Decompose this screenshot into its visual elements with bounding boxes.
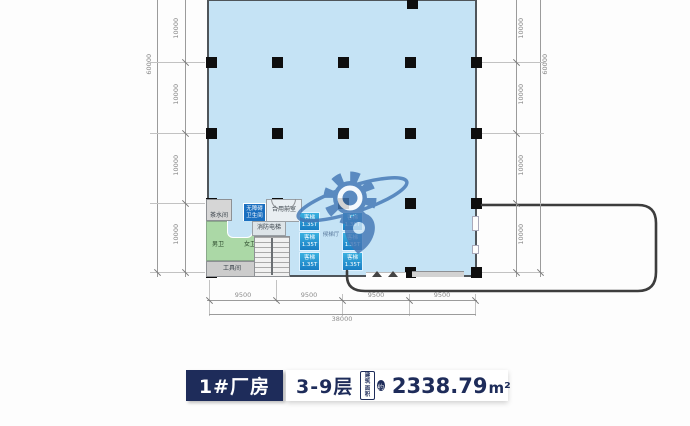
approx-circle-icon: 约	[377, 380, 385, 391]
logo-watermark-icon	[294, 169, 410, 254]
dim-value: 9500	[356, 292, 396, 299]
extension-line	[150, 62, 205, 63]
dim-total: 38000	[322, 316, 362, 323]
dim-total: 60000	[146, 44, 153, 84]
area-badge: 建筑 面积 约	[360, 371, 385, 400]
dim-value: 9500	[223, 292, 263, 299]
dim-value: 9500	[422, 292, 462, 299]
dim-total: 60000	[542, 44, 549, 84]
floor-plan-page: 茶水间 合用前室 无障碍 卫生间 男卫 女卫 工具间 消防电梯 客梯 1.35T…	[0, 0, 690, 426]
extension-line	[482, 133, 544, 134]
dimension-line	[157, 0, 158, 277]
driveway-loop	[347, 205, 656, 291]
dim-value: 10000	[518, 74, 525, 114]
floors-label: 3-9层	[296, 372, 353, 399]
area-badge-line: 面积	[363, 386, 371, 399]
area-badge-text: 建筑 面积	[360, 371, 374, 400]
extension-line	[482, 272, 544, 273]
extension-line	[209, 280, 210, 316]
dim-value: 10000	[518, 8, 525, 48]
extension-line	[482, 62, 544, 63]
dim-value: 10000	[518, 145, 525, 185]
dim-value: 10000	[173, 214, 180, 254]
building-name-badge: 1#厂房	[186, 370, 283, 401]
dim-value: 10000	[173, 145, 180, 185]
extension-line	[475, 294, 476, 316]
dim-value: 10000	[173, 74, 180, 114]
dimension-line	[185, 0, 186, 277]
dim-value: 10000	[518, 214, 525, 254]
footer-bar: 1#厂房 3-9层 建筑 面积 约 2338.79 m²	[186, 370, 508, 401]
extension-line	[409, 294, 410, 316]
building-name: 1#厂房	[199, 372, 270, 399]
area-value: 2338.79 m²	[392, 374, 511, 398]
plan-overlay	[0, 0, 690, 426]
dim-value: 9500	[289, 292, 329, 299]
extension-line	[342, 294, 343, 316]
extension-line	[150, 133, 205, 134]
dimension-line	[540, 0, 541, 277]
area-unit: m²	[489, 379, 511, 397]
unit-info-panel: 3-9层 建筑 面积 约 2338.79 m²	[286, 370, 508, 401]
dim-value: 10000	[173, 8, 180, 48]
area-badge-line: 建筑	[363, 373, 371, 386]
area-number: 2338.79	[392, 374, 488, 398]
extension-line	[150, 203, 205, 204]
extension-line	[482, 203, 544, 204]
